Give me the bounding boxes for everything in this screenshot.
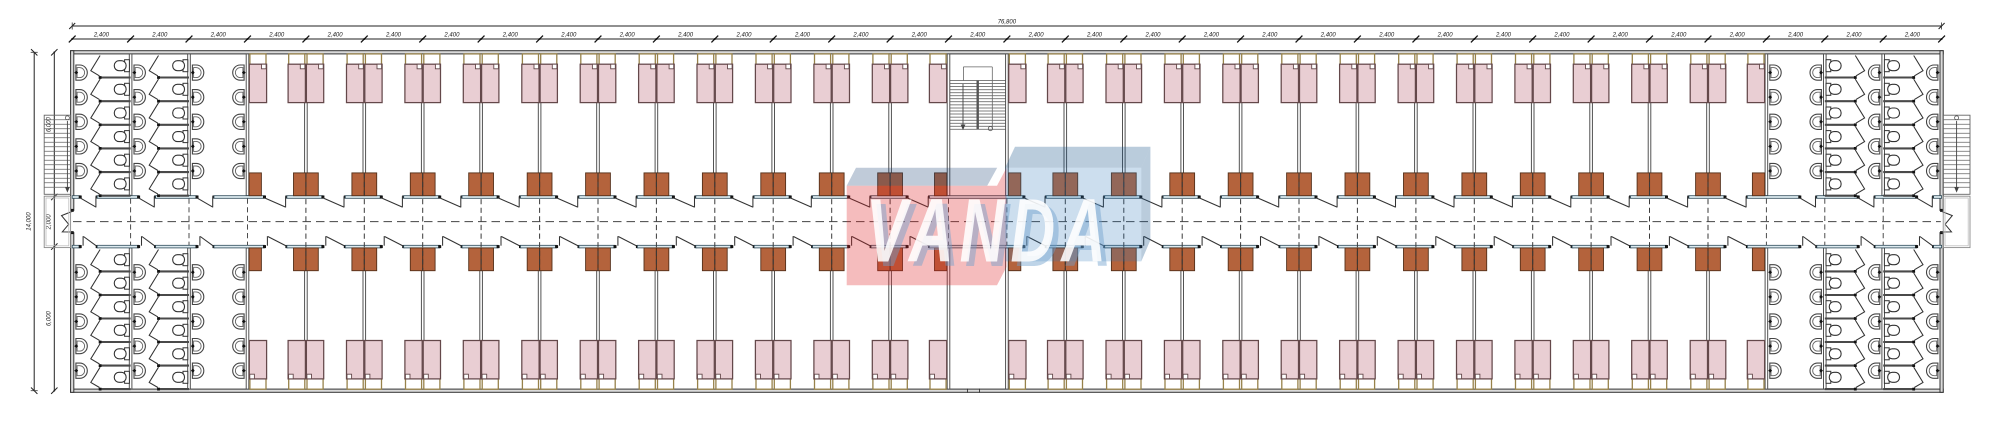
svg-text:2,400: 2,400 xyxy=(969,33,986,39)
svg-text:76,800: 76,800 xyxy=(998,20,1017,26)
svg-text:2,400: 2,400 xyxy=(1437,33,1454,39)
svg-text:2,400: 2,400 xyxy=(1904,33,1921,39)
svg-text:2,400: 2,400 xyxy=(619,33,636,39)
svg-text:2,400: 2,400 xyxy=(911,33,928,39)
svg-text:2,400: 2,400 xyxy=(327,33,344,39)
svg-text:2,400: 2,400 xyxy=(1845,33,1862,39)
svg-text:2,400: 2,400 xyxy=(1495,33,1512,39)
svg-text:2,400: 2,400 xyxy=(93,33,110,39)
svg-text:2,400: 2,400 xyxy=(677,33,694,39)
svg-text:14,000: 14,000 xyxy=(27,212,33,231)
svg-text:2,400: 2,400 xyxy=(1261,33,1278,39)
svg-text:2,400: 2,400 xyxy=(1553,33,1570,39)
svg-text:2,400: 2,400 xyxy=(1086,33,1103,39)
svg-text:2,400: 2,400 xyxy=(794,33,811,39)
svg-text:2,400: 2,400 xyxy=(1028,33,1045,39)
svg-text:2,400: 2,400 xyxy=(443,33,460,39)
svg-text:6,000: 6,000 xyxy=(47,310,53,326)
svg-text:2,400: 2,400 xyxy=(1144,33,1161,39)
svg-text:2,400: 2,400 xyxy=(1670,33,1687,39)
svg-text:2,400: 2,400 xyxy=(1203,33,1220,39)
svg-text:2,400: 2,400 xyxy=(560,33,577,39)
svg-text:2,400: 2,400 xyxy=(852,33,869,39)
svg-text:2,400: 2,400 xyxy=(1320,33,1337,39)
svg-text:2,000: 2,000 xyxy=(47,214,53,231)
svg-text:2,400: 2,400 xyxy=(385,33,402,39)
svg-text:2,400: 2,400 xyxy=(735,33,752,39)
svg-text:2,400: 2,400 xyxy=(268,33,285,39)
svg-text:2,400: 2,400 xyxy=(1787,33,1804,39)
svg-text:2,400: 2,400 xyxy=(1378,33,1395,39)
svg-text:2,400: 2,400 xyxy=(1729,33,1746,39)
svg-text:2,400: 2,400 xyxy=(151,33,168,39)
svg-text:2,400: 2,400 xyxy=(210,33,227,39)
svg-text:2,400: 2,400 xyxy=(502,33,519,39)
svg-text:2,400: 2,400 xyxy=(1612,33,1629,39)
svg-text:VANDA: VANDA xyxy=(866,181,1112,281)
